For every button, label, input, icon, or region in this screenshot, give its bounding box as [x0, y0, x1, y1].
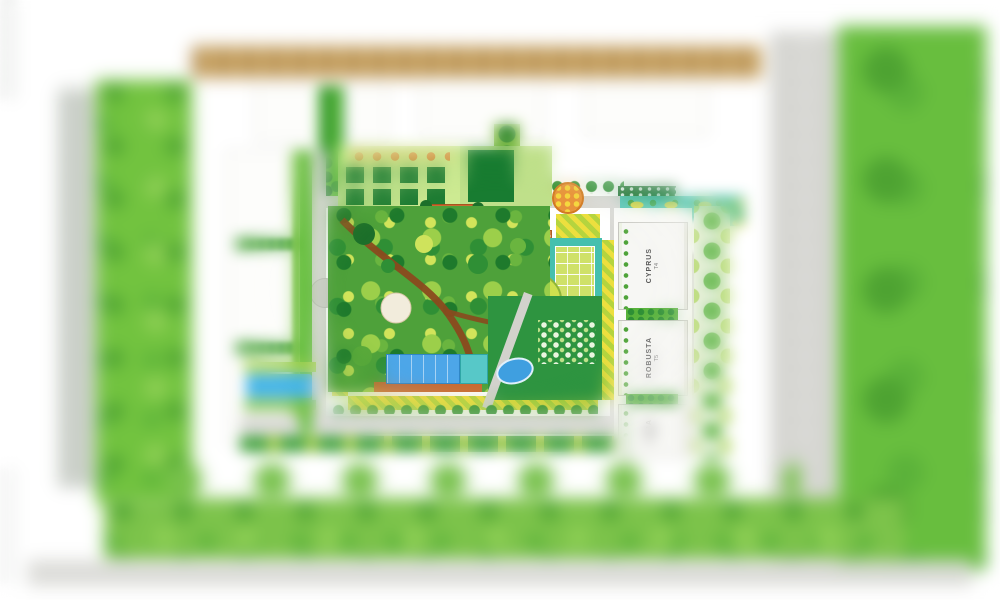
- left-courtyard-2: [236, 342, 300, 354]
- hedge-row-1: [346, 167, 454, 183]
- planter-row: [350, 152, 450, 161]
- diagonal-path: [482, 292, 532, 410]
- tree: [468, 254, 488, 274]
- right-green-field: [838, 26, 986, 570]
- tower-code: T4: [654, 263, 660, 269]
- lap-pool: [386, 354, 460, 384]
- top-building-3: [584, 84, 708, 136]
- bottom-green-band: [104, 498, 904, 562]
- left-courtyard-1: [236, 238, 300, 250]
- tower-name: ALBA: [646, 419, 653, 442]
- tower-connector-1: [626, 308, 678, 320]
- garden-top-center: [460, 146, 552, 206]
- main-lawn: [488, 296, 602, 400]
- leisure-pool-left: [246, 374, 312, 398]
- splash-pad-circle: [552, 182, 584, 214]
- top-building-2: [420, 82, 544, 138]
- gazebo: [381, 293, 411, 323]
- hedge-block: [468, 150, 514, 202]
- tower-robusta: ROBUSTA T5: [618, 320, 688, 396]
- left-boundary-wall: [58, 88, 100, 486]
- tower-alba: ALBA T6: [618, 404, 688, 458]
- tower-cyprus: CYPRUS T4: [618, 222, 688, 310]
- tree: [510, 238, 526, 254]
- tower-label-wrap: ROBUSTA T5: [619, 321, 687, 395]
- formal-garden: [338, 146, 460, 208]
- road-bottom: [240, 416, 614, 434]
- left-edge-ticks: [2, 0, 16, 96]
- masterplan-image: CYPRUS T4 ROBUSTA T5 ALBA T6: [0, 0, 1000, 600]
- tree: [352, 346, 372, 366]
- bottom-gray-strip: [28, 560, 972, 586]
- plunge-pool: [460, 354, 488, 384]
- tree: [381, 259, 395, 273]
- tree: [353, 223, 375, 245]
- green-strip-bl-2: [244, 362, 316, 372]
- left-green-band: [96, 80, 192, 504]
- top-tan-band: [192, 46, 762, 78]
- tower-label-wrap: CYPRUS T4: [619, 223, 687, 309]
- treeline-bottom: [330, 404, 598, 414]
- tree-column-right: [694, 206, 730, 458]
- tennis-court: [555, 246, 595, 297]
- hedge-row-topright: [618, 186, 676, 196]
- tower-code: T5: [654, 355, 660, 361]
- hedge-row-2: [346, 189, 454, 205]
- green-strip-bl-1: [244, 400, 316, 410]
- tree: [415, 235, 433, 253]
- tower-name: ROBUSTA: [646, 337, 653, 378]
- tower-name: CYPRUS: [646, 248, 653, 283]
- green-planting-row: [240, 436, 620, 452]
- tower-code: T6: [654, 428, 660, 434]
- left-bottom-ticks: [2, 470, 16, 580]
- pergola-seating: [538, 320, 596, 364]
- tower-connector-2: [626, 394, 678, 404]
- tower-label-wrap: ALBA T6: [619, 405, 687, 457]
